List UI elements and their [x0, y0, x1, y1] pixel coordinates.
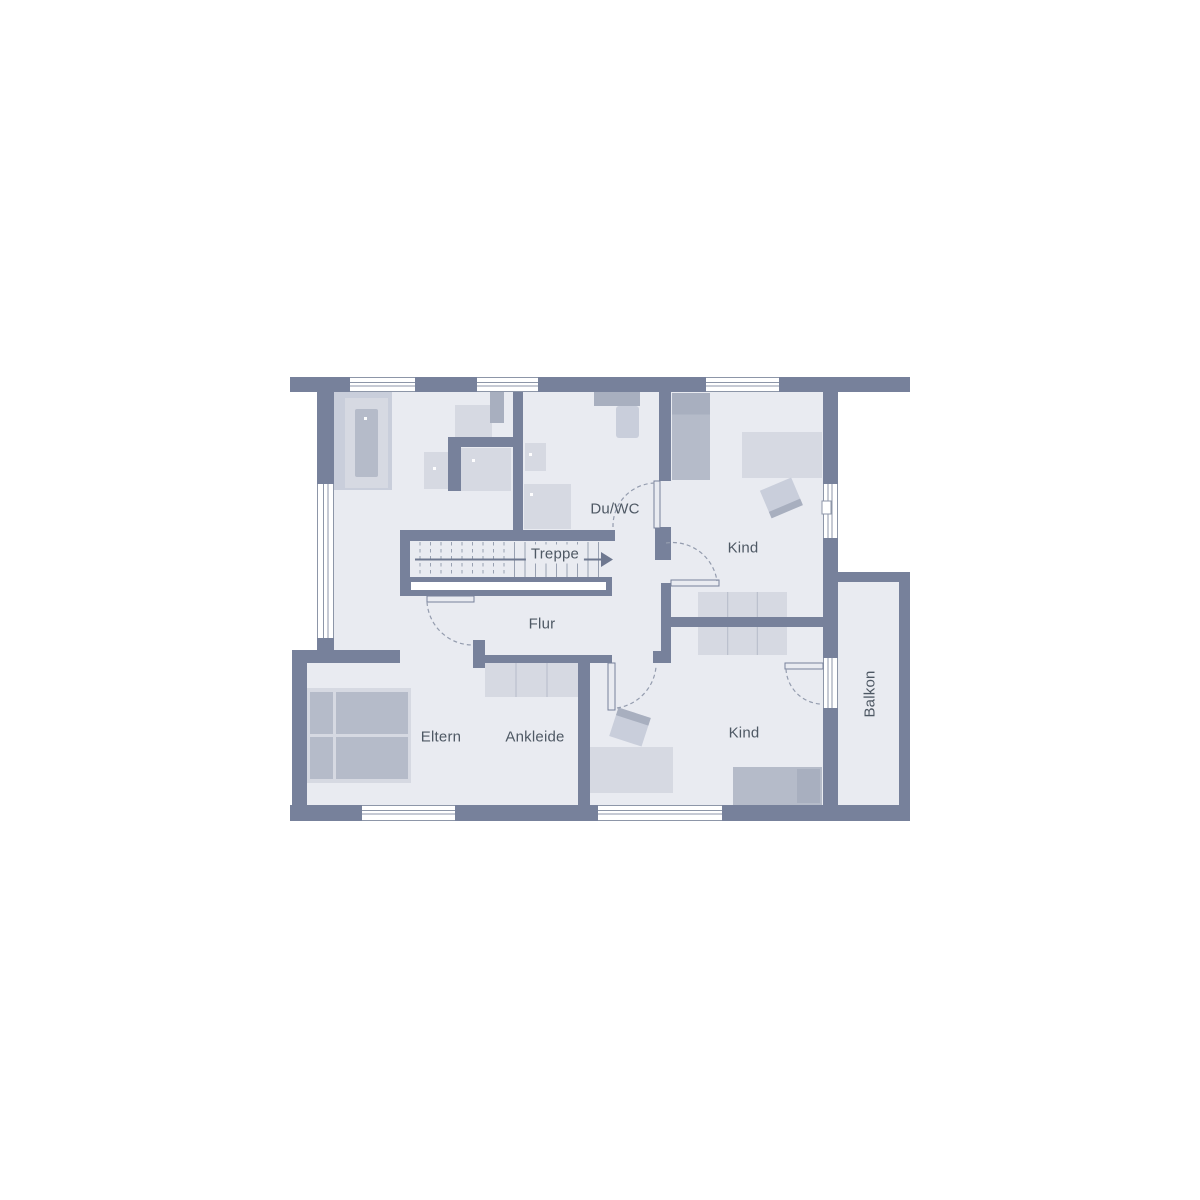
window-right-handle [822, 501, 831, 514]
stairs-handrail-slot [411, 582, 606, 590]
bath-wc-fixture [455, 405, 492, 437]
wall-right-upper [823, 392, 838, 484]
wall-bath-duwc [513, 392, 523, 541]
kind-upper-wardrobe [672, 415, 710, 480]
ankleide-furniture [485, 663, 578, 697]
duwc-sink-dot [529, 453, 532, 456]
door-kind-lower-leaf [608, 663, 615, 710]
wall-duwc-east [659, 392, 671, 481]
bath-sink-right-dot [472, 459, 475, 462]
bath-sink-left [424, 452, 448, 489]
room-label-kind-lower: Kind [729, 725, 760, 742]
window-top-2 [477, 377, 538, 392]
wall-ankleide-north [485, 655, 612, 663]
bathtub-drain-dot [364, 417, 367, 420]
room-label-kind-upper: Kind [728, 540, 759, 557]
wall-bath-partition-v [448, 437, 461, 491]
eltern-mattress-1 [336, 692, 408, 734]
bath-sink-right [461, 448, 511, 491]
wall-eltern-west [292, 650, 307, 805]
duwc-shower [524, 484, 571, 529]
wall-kind-divider [671, 617, 823, 627]
kind-lower-bed-pillow [797, 769, 820, 803]
wall-balcony-top [836, 572, 910, 582]
wall-kind-lower-north-stub [653, 651, 671, 663]
wall-kind-upper-west [661, 583, 671, 652]
window-bottom-eltern [362, 805, 455, 821]
eltern-pillow-1 [310, 692, 333, 734]
wall-ankleide-kind [578, 655, 590, 805]
room-label-balkon: Balkon [862, 670, 879, 717]
kind-upper-wardrobe-top [672, 393, 710, 415]
window-bottom-kind [598, 805, 722, 821]
wall-eltern-north [292, 650, 400, 663]
duwc-toilet-bowl [616, 406, 639, 438]
door-duwc-leaf [654, 481, 660, 528]
duwc-shower-dot [530, 493, 533, 496]
wall-corner-block [655, 527, 671, 560]
room-label-flur: Flur [529, 616, 556, 633]
door-kind-upper-leaf [671, 580, 719, 586]
wall-left-below-window [317, 638, 334, 652]
door-eltern-leaf [427, 596, 474, 602]
room-label-duwc: Du/WC [590, 501, 639, 518]
floorplan-drawing [0, 0, 1200, 1200]
wall-stairs-north [400, 530, 615, 541]
wall-right-middle [823, 538, 838, 658]
wall-door-stub [473, 640, 485, 668]
eltern-mattress-2 [336, 737, 408, 779]
ankleide-wardrobe [485, 663, 578, 697]
duwc-sink [525, 443, 546, 471]
room-label-ankleide: Ankleide [505, 729, 564, 746]
floorplan-page: Du/WC Treppe Kind Flur Eltern Ankleide K… [0, 0, 1200, 1200]
wall-balcony-right [899, 572, 910, 821]
eltern-pillow-2 [310, 737, 333, 779]
kind-lower-desk [590, 747, 673, 793]
kind-upper-bed [742, 432, 822, 478]
duwc-toilet-cistern [594, 392, 640, 406]
wall-right-lower [823, 708, 838, 805]
window-top-1 [350, 377, 415, 392]
bath-wc-cistern [490, 392, 504, 423]
bath-sink-left-dot [433, 467, 436, 470]
eltern-furniture [307, 688, 411, 783]
room-label-eltern: Eltern [421, 729, 461, 746]
window-top-3 [706, 377, 779, 392]
window-right [822, 484, 838, 538]
room-label-treppe: Treppe [526, 545, 584, 564]
balcony-door-window [823, 658, 838, 708]
wall-left-upper [317, 392, 334, 484]
window-left [317, 484, 334, 638]
door-balcony-leaf [785, 663, 823, 669]
